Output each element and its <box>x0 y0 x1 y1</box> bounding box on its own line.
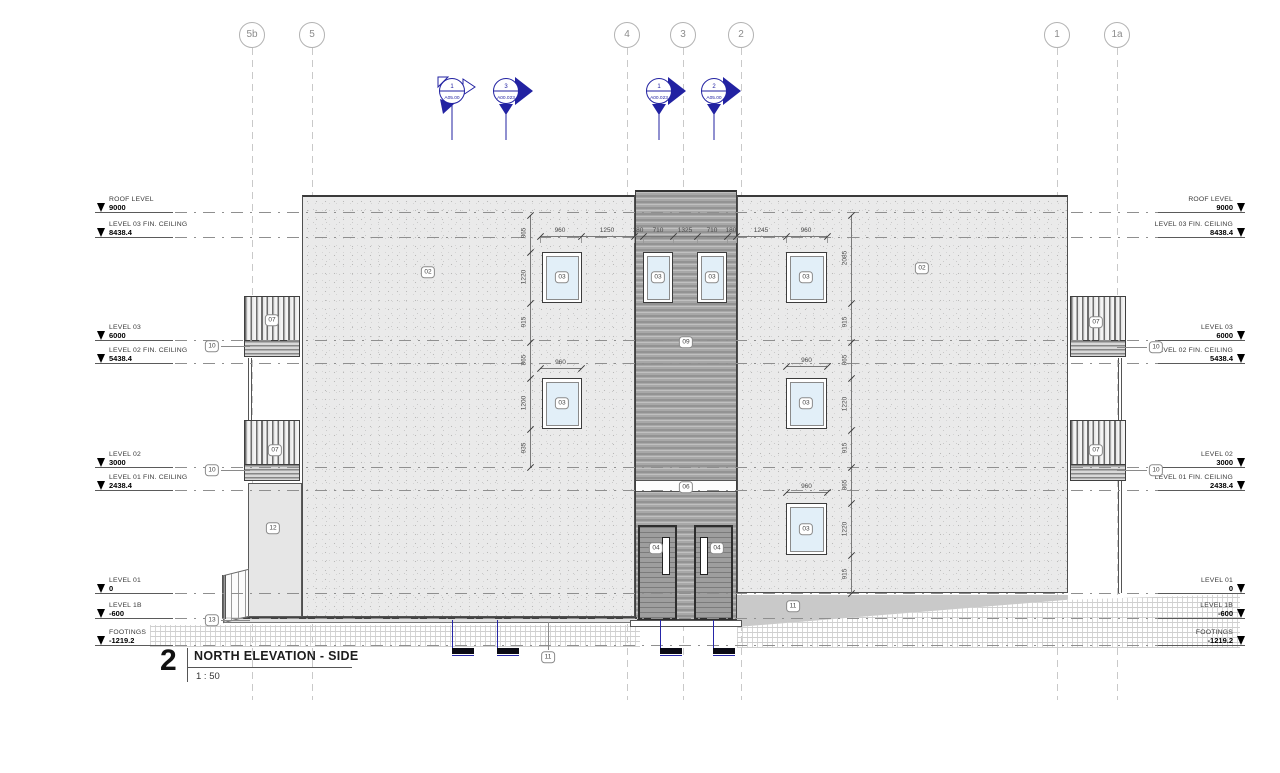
section-marker-icon: 3A00.023 <box>491 76 541 142</box>
dim-line-width <box>786 366 827 367</box>
dim-value: 960 <box>801 357 812 364</box>
balcony-deck <box>1070 340 1126 357</box>
level-line <box>175 645 1158 646</box>
level-line <box>175 212 1158 213</box>
level-line-solid-right <box>1158 467 1245 468</box>
level-text: LEVEL 1B-600 <box>1200 602 1233 618</box>
grid-bubble-1: 1 <box>1044 22 1070 48</box>
level-line <box>175 467 1158 468</box>
footing-marker-bar <box>660 648 682 654</box>
dim-value: 1245 <box>754 227 768 234</box>
level-value: -1219.2 <box>1196 637 1233 645</box>
ground-hatch-left <box>150 625 640 647</box>
view-title: NORTH ELEVATION - SIDE <box>194 649 358 663</box>
level-line-solid-left <box>95 237 173 238</box>
balcony-post <box>1118 358 1122 420</box>
level-triangle-icon <box>97 458 105 467</box>
level-value: 2438.4 <box>1155 482 1233 490</box>
svg-text:A05.00: A05.00 <box>706 95 722 101</box>
title-rule <box>187 667 352 668</box>
level-label-left: FOOTINGS-1219.2 <box>97 628 146 645</box>
level-value: 0 <box>109 585 141 593</box>
dim-value: 1220 <box>521 270 528 284</box>
footing-marker-bar <box>497 648 519 654</box>
porch-railing <box>223 569 249 623</box>
level-line-solid-right <box>1158 212 1245 213</box>
door-vision-panel <box>700 537 708 575</box>
keynote-tag-03: 03 <box>555 271 569 283</box>
grid-bubble-2: 2 <box>728 22 754 48</box>
level-text: LEVEL 023000 <box>109 451 141 467</box>
level-label-left: ROOF LEVEL9000 <box>97 195 154 212</box>
level-line-solid-left <box>95 618 173 619</box>
level-label-right: LEVEL 010 <box>1128 576 1245 593</box>
level-line <box>175 618 1158 619</box>
level-triangle-icon <box>97 636 105 645</box>
dim-value: 1220 <box>842 522 849 536</box>
view-number: 2 <box>160 644 177 678</box>
level-text: ROOF LEVEL9000 <box>1188 196 1233 212</box>
keynote-tag-10: 10 <box>205 464 219 476</box>
keynote-tag-03: 03 <box>799 397 813 409</box>
level-value: 5438.4 <box>1155 355 1233 363</box>
dim-extension <box>643 237 644 243</box>
footing-marker-underline <box>713 655 735 656</box>
keynote-leader <box>1117 347 1147 348</box>
level-value: 6000 <box>109 332 141 340</box>
level-line-solid-right <box>1158 645 1245 646</box>
dim-extension <box>581 237 582 243</box>
dim-extension <box>736 237 737 243</box>
level-text: LEVEL 036000 <box>109 324 141 340</box>
level-label-left: LEVEL 02 FIN. CEILING5438.4 <box>97 346 187 363</box>
level-text: LEVEL 02 FIN. CEILING5438.4 <box>109 347 187 363</box>
keynote-tag-04: 04 <box>710 542 724 554</box>
level-line-solid-right <box>1158 490 1245 491</box>
grid-bubble-5b: 5b <box>239 22 265 48</box>
level-text: LEVEL 03 FIN. CEILING8438.4 <box>1155 221 1233 237</box>
level-triangle-icon <box>97 331 105 340</box>
level-text: LEVEL 1B-600 <box>109 602 142 618</box>
level-text: LEVEL 010 <box>109 577 141 593</box>
level-label-left: LEVEL 01 FIN. CEILING2438.4 <box>97 473 187 490</box>
level-line-solid-left <box>95 467 173 468</box>
keynote-tag-03: 03 <box>651 271 665 283</box>
keynote-leader <box>221 620 250 621</box>
dim-value: 960 <box>555 359 566 366</box>
level-value: 2438.4 <box>109 482 187 490</box>
keynote-tag-07: 07 <box>268 444 282 456</box>
left-wing-wall <box>302 195 635 617</box>
entry-door <box>638 525 677 620</box>
level-text: LEVEL 036000 <box>1201 324 1233 340</box>
section-marker-icon: 1A05.00 <box>437 76 487 142</box>
footing-marker-underline <box>497 655 519 656</box>
dim-value: 915 <box>521 317 528 328</box>
level-name: LEVEL 01 <box>109 577 141 585</box>
footing-marker-line <box>452 620 453 650</box>
level-text: LEVEL 01 FIN. CEILING2438.4 <box>1155 474 1233 490</box>
level-line-solid-right <box>1158 237 1245 238</box>
level-triangle-icon <box>1237 354 1245 363</box>
level-line-solid-left <box>95 490 173 491</box>
dim-extension <box>697 237 698 243</box>
entry-door <box>694 525 733 620</box>
level-value: 5438.4 <box>109 355 187 363</box>
balcony-railing <box>244 296 300 357</box>
keynote-tag-06: 06 <box>679 481 693 493</box>
keynote-tag-12: 12 <box>266 522 280 534</box>
keynote-tag-07: 07 <box>1089 316 1103 328</box>
dim-value: 2085 <box>842 251 849 265</box>
level-label-right: LEVEL 01 FIN. CEILING2438.4 <box>1128 473 1245 490</box>
dim-value: 180 <box>633 227 644 234</box>
dim-value: 960 <box>801 227 812 234</box>
balcony-slats <box>244 420 300 464</box>
door-vision-panel <box>662 537 670 575</box>
level-line-solid-left <box>95 363 173 364</box>
level-triangle-icon <box>97 203 105 212</box>
level-triangle-icon <box>1237 481 1245 490</box>
level-text: FOOTINGS-1219.2 <box>109 629 146 645</box>
footing-marker-bar <box>713 648 735 654</box>
dim-extension <box>727 237 728 243</box>
dim-extension <box>634 237 635 243</box>
level-label-right: ROOF LEVEL9000 <box>1128 195 1245 212</box>
entry-threshold <box>630 620 742 627</box>
level-label-left: LEVEL 010 <box>97 576 141 593</box>
level-line-solid-left <box>95 340 173 341</box>
level-value: 9000 <box>109 204 154 212</box>
keynote-tag-07: 07 <box>265 314 279 326</box>
keynote-tag-03: 03 <box>705 271 719 283</box>
level-text: FOOTINGS-1219.2 <box>1196 629 1233 645</box>
svg-text:A00.023: A00.023 <box>497 95 515 101</box>
dim-extension <box>540 237 541 243</box>
keynote-tag-11: 11 <box>541 651 555 663</box>
keynote-leader <box>221 346 250 347</box>
level-triangle-icon <box>97 609 105 618</box>
keynote-tag-03: 03 <box>799 271 813 283</box>
dim-value: 960 <box>555 227 566 234</box>
level-line <box>175 340 1158 341</box>
level-label-right: LEVEL 03 FIN. CEILING8438.4 <box>1128 220 1245 237</box>
dim-value: 865 <box>521 355 528 366</box>
level-triangle-icon <box>1237 203 1245 212</box>
dim-extension <box>786 237 787 243</box>
level-label-right: LEVEL 023000 <box>1128 450 1245 467</box>
section-marker-icon: 2A05.00 <box>699 76 749 142</box>
lower-left-wall <box>248 483 302 617</box>
keynote-tag-10: 10 <box>205 340 219 352</box>
level-value: 3000 <box>1201 459 1233 467</box>
title-separator <box>187 648 188 682</box>
level-value: -600 <box>1200 610 1233 618</box>
balcony-deck <box>244 340 300 357</box>
level-line-solid-right <box>1158 618 1245 619</box>
dim-value: 935 <box>521 443 528 454</box>
footing-marker-line <box>497 620 498 650</box>
level-triangle-icon <box>97 584 105 593</box>
level-line-solid-right <box>1158 593 1245 594</box>
level-label-left: LEVEL 1B-600 <box>97 601 142 618</box>
balcony-post <box>1118 480 1122 593</box>
dim-line-width <box>540 368 581 369</box>
level-triangle-icon <box>1237 636 1245 645</box>
level-text: LEVEL 010 <box>1201 577 1233 593</box>
dim-value: 1220 <box>842 397 849 411</box>
dim-value: 1200 <box>521 396 528 410</box>
porch-post <box>222 575 226 619</box>
keynote-tag-02: 02 <box>421 266 435 278</box>
grid-bubble-5: 5 <box>299 22 325 48</box>
level-value: -600 <box>109 610 142 618</box>
level-line <box>175 593 1158 594</box>
level-value: 9000 <box>1188 204 1233 212</box>
keynote-leader <box>221 470 250 471</box>
dim-value: 865 <box>521 228 528 239</box>
level-label-left: LEVEL 023000 <box>97 450 141 467</box>
level-line-solid-right <box>1158 363 1245 364</box>
svg-text:A00.023: A00.023 <box>650 95 668 101</box>
level-line <box>175 490 1158 491</box>
keynote-tag-03: 03 <box>555 397 569 409</box>
level-value: 6000 <box>1201 332 1233 340</box>
dim-value: 180 <box>726 227 737 234</box>
level-label-right: FOOTINGS-1219.2 <box>1128 628 1245 645</box>
dim-value: 1250 <box>600 227 614 234</box>
grid-bubble-1a: 1a <box>1104 22 1130 48</box>
level-label-right: LEVEL 036000 <box>1128 323 1245 340</box>
level-line-solid-left <box>95 593 173 594</box>
level-triangle-icon <box>97 354 105 363</box>
section-marker-icon: 1A00.023 <box>644 76 694 142</box>
footing-marker-underline <box>452 655 474 656</box>
view-scale: 1 : 50 <box>196 671 220 682</box>
level-text: LEVEL 023000 <box>1201 451 1233 467</box>
dim-value: 710 <box>707 227 718 234</box>
keynote-leader <box>548 622 549 650</box>
elevation-sheet: 5b543211a ROOF LEVEL9000ROOF LEVEL9000LE… <box>0 0 1280 773</box>
level-label-right: LEVEL 1B-600 <box>1128 601 1245 618</box>
level-text: LEVEL 03 FIN. CEILING8438.4 <box>109 221 187 237</box>
level-line <box>175 363 1158 364</box>
level-triangle-icon <box>97 481 105 490</box>
balcony-post <box>248 358 252 420</box>
level-text: LEVEL 01 FIN. CEILING2438.4 <box>109 474 187 490</box>
svg-text:A05.00: A05.00 <box>444 95 460 101</box>
level-line-solid-left <box>95 212 173 213</box>
dim-value: 865 <box>842 480 849 491</box>
keynote-tag-09: 09 <box>679 336 693 348</box>
level-value: 3000 <box>109 459 141 467</box>
level-text: LEVEL 02 FIN. CEILING5438.4 <box>1155 347 1233 363</box>
keynote-tag-10: 10 <box>1149 464 1163 476</box>
keynote-tag-02: 02 <box>915 262 929 274</box>
dim-value: 710 <box>653 227 664 234</box>
level-line-solid-right <box>1158 340 1245 341</box>
keynote-tag-07: 07 <box>1089 444 1103 456</box>
level-value: 8438.4 <box>109 229 187 237</box>
grid-bubble-3: 3 <box>670 22 696 48</box>
keynote-tag-10: 10 <box>1149 341 1163 353</box>
level-triangle-icon <box>1237 609 1245 618</box>
level-text: ROOF LEVEL9000 <box>109 196 154 212</box>
level-value: 0 <box>1201 585 1233 593</box>
level-label-left: LEVEL 036000 <box>97 323 141 340</box>
level-line <box>175 237 1158 238</box>
keynote-tag-03: 03 <box>799 523 813 535</box>
level-triangle-icon <box>97 228 105 237</box>
level-triangle-icon <box>1237 584 1245 593</box>
footing-marker-line <box>660 620 661 650</box>
level-value: 8438.4 <box>1155 229 1233 237</box>
level-label-left: LEVEL 03 FIN. CEILING8438.4 <box>97 220 187 237</box>
dim-extension <box>673 237 674 243</box>
level-value: -1219.2 <box>109 637 146 645</box>
dim-value: 915 <box>842 317 849 328</box>
balcony-slats <box>1070 420 1126 464</box>
dim-value: 960 <box>801 483 812 490</box>
grid-bubble-4: 4 <box>614 22 640 48</box>
dim-value: 915 <box>842 443 849 454</box>
dim-value: 865 <box>842 355 849 366</box>
dim-line-width <box>786 492 827 493</box>
footing-marker-bar <box>452 648 474 654</box>
keynote-leader <box>1117 470 1147 471</box>
dim-extension <box>827 237 828 243</box>
keynote-tag-04: 04 <box>649 542 663 554</box>
level-label-right: LEVEL 02 FIN. CEILING5438.4 <box>1128 346 1245 363</box>
dim-value: 1325 <box>678 227 692 234</box>
footing-marker-underline <box>660 655 682 656</box>
level-triangle-icon <box>1237 228 1245 237</box>
level-triangle-icon <box>1237 331 1245 340</box>
level-triangle-icon <box>1237 458 1245 467</box>
keynote-tag-11: 11 <box>786 600 800 612</box>
footing-marker-line <box>713 620 714 650</box>
dim-line-col <box>851 215 852 593</box>
keynote-tag-13: 13 <box>205 614 219 626</box>
dim-value: 915 <box>842 569 849 580</box>
